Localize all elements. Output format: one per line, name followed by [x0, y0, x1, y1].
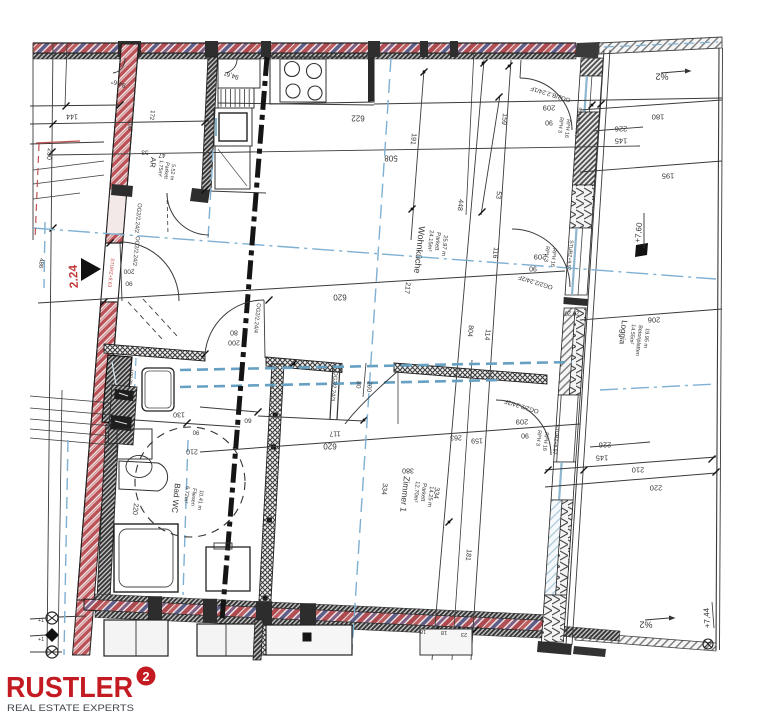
svg-text:47: 47: [158, 152, 166, 159]
svg-text:200: 200: [126, 120, 133, 131]
svg-text:209: 209: [516, 418, 529, 427]
svg-text:209: 209: [543, 104, 556, 113]
svg-text:217: 217: [403, 282, 411, 294]
svg-text:220: 220: [131, 503, 139, 515]
svg-text:250: 250: [45, 148, 53, 160]
svg-text:90: 90: [192, 429, 199, 435]
svg-text:2.24: 2.24: [66, 264, 81, 288]
svg-text:448: 448: [456, 199, 464, 211]
svg-text:191: 191: [409, 133, 417, 145]
svg-text:200: 200: [123, 268, 134, 275]
svg-text:380: 380: [402, 467, 414, 474]
svg-text:90: 90: [521, 432, 529, 439]
svg-text:159: 159: [500, 113, 508, 125]
svg-text:334: 334: [380, 483, 388, 495]
svg-text:116: 116: [491, 247, 499, 259]
svg-text:622: 622: [351, 114, 365, 123]
svg-text:145: 145: [596, 454, 609, 463]
svg-text:200: 200: [365, 381, 373, 393]
svg-text:+1: +1: [38, 618, 44, 624]
svg-text:226: 226: [599, 441, 612, 450]
svg-text:210: 210: [632, 466, 645, 475]
svg-text:220: 220: [650, 484, 663, 493]
svg-text:AR: AR: [148, 157, 158, 169]
svg-text:90: 90: [125, 280, 133, 287]
svg-text:+7,44: +7,44: [702, 607, 712, 628]
svg-text:80: 80: [230, 329, 238, 336]
svg-text:RUSTLER: RUSTLER: [6, 672, 133, 704]
svg-text:226: 226: [615, 125, 628, 134]
svg-text:263: 263: [450, 434, 462, 441]
svg-text:%2: %2: [655, 72, 668, 82]
svg-text:+1: +1: [38, 637, 44, 643]
svg-text:620: 620: [323, 442, 337, 451]
svg-text:195: 195: [662, 172, 675, 181]
svg-text:80: 80: [354, 381, 362, 389]
svg-text:159: 159: [471, 437, 483, 444]
svg-text:130: 130: [173, 411, 185, 418]
svg-text:200: 200: [228, 339, 240, 346]
svg-text:144: 144: [66, 113, 78, 120]
svg-text:172: 172: [148, 110, 155, 121]
svg-text:180: 180: [652, 113, 665, 122]
svg-text:18: 18: [441, 629, 447, 635]
svg-text:20 20: 20 20: [564, 310, 580, 316]
svg-text:90: 90: [545, 119, 553, 126]
svg-text:145: 145: [615, 137, 628, 146]
svg-text:334: 334: [432, 487, 440, 499]
svg-text:53: 53: [494, 191, 502, 200]
svg-text:REAL ESTATE EXPERTS: REAL ESTATE EXPERTS: [7, 703, 134, 714]
svg-text:117: 117: [329, 430, 340, 437]
svg-text:53: 53: [141, 149, 149, 156]
svg-text:%2: %2: [639, 620, 652, 630]
svg-text:60: 60: [244, 417, 252, 424]
svg-text:210: 210: [186, 448, 198, 455]
svg-text:114: 114: [483, 329, 491, 341]
svg-text:206: 206: [648, 316, 661, 325]
svg-text:181: 181: [464, 549, 472, 561]
svg-text:620: 620: [333, 293, 347, 302]
svg-text:18: 18: [420, 628, 426, 634]
svg-text:486: 486: [37, 258, 44, 269]
svg-text:508: 508: [384, 154, 398, 163]
svg-text:23: 23: [461, 631, 467, 637]
svg-text:90: 90: [529, 265, 537, 272]
svg-text:804: 804: [466, 325, 474, 337]
svg-text:2: 2: [142, 669, 149, 684]
